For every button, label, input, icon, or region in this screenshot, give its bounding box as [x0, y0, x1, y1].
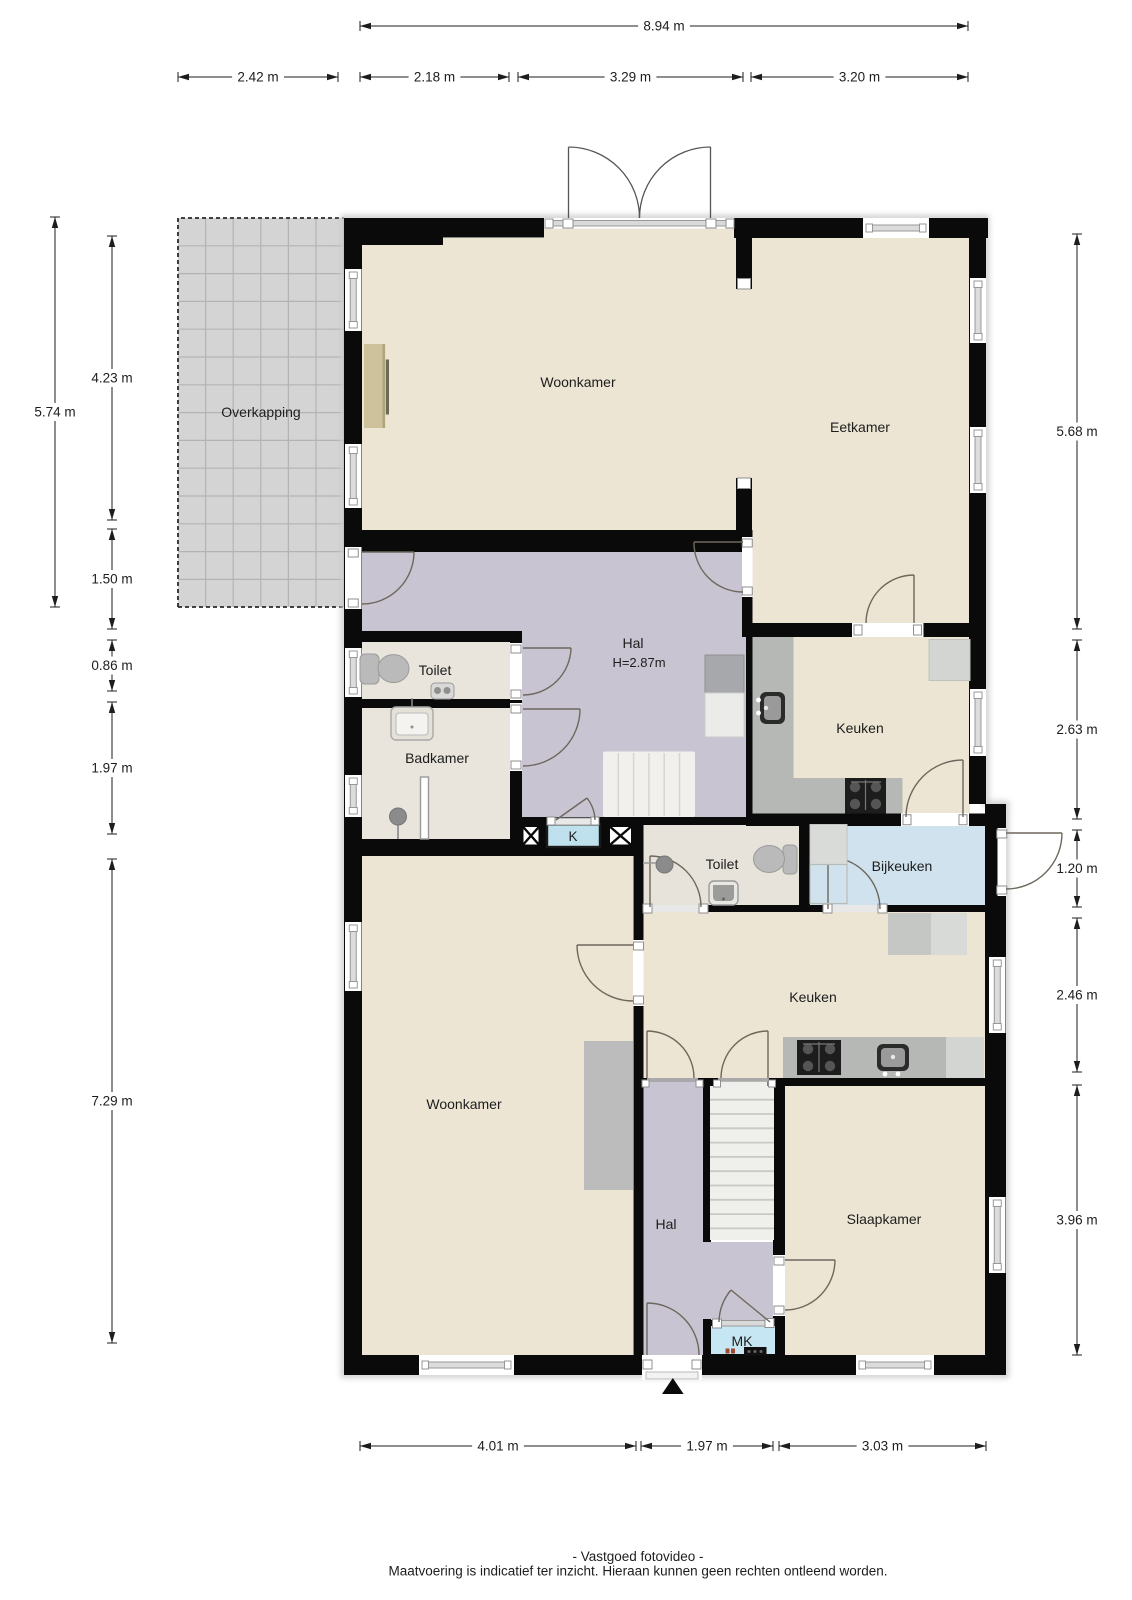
svg-text:Eetkamer: Eetkamer — [830, 419, 890, 435]
svg-text:Toilet: Toilet — [706, 856, 739, 872]
svg-text:Overkapping: Overkapping — [221, 404, 300, 420]
svg-text:Badkamer: Badkamer — [405, 750, 469, 766]
svg-text:4.01 m: 4.01 m — [477, 1439, 518, 1454]
svg-text:Woonkamer: Woonkamer — [540, 374, 616, 390]
svg-text:Hal: Hal — [655, 1216, 676, 1232]
svg-text:4.23 m: 4.23 m — [91, 371, 132, 386]
svg-text:1.97 m: 1.97 m — [91, 761, 132, 776]
svg-text:7.29 m: 7.29 m — [91, 1094, 132, 1109]
svg-text:3.29 m: 3.29 m — [610, 70, 651, 85]
svg-text:2.42 m: 2.42 m — [237, 70, 278, 85]
svg-text:Maatvoering is indicatief ter: Maatvoering is indicatief ter inzicht. H… — [388, 1564, 887, 1579]
svg-text:5.68 m: 5.68 m — [1056, 424, 1097, 439]
svg-text:- Vastgoed fotovideo -: - Vastgoed fotovideo - — [572, 1549, 703, 1564]
svg-text:5.74 m: 5.74 m — [34, 405, 75, 420]
svg-text:MK: MK — [732, 1333, 754, 1349]
svg-text:0.86 m: 0.86 m — [91, 658, 132, 673]
svg-text:3.96 m: 3.96 m — [1056, 1213, 1097, 1228]
svg-text:K: K — [568, 829, 577, 844]
svg-text:1.20 m: 1.20 m — [1056, 861, 1097, 876]
svg-text:3.03 m: 3.03 m — [862, 1439, 903, 1454]
svg-text:Toilet: Toilet — [419, 662, 452, 678]
svg-text:Hal: Hal — [622, 635, 643, 651]
svg-text:Slaapkamer: Slaapkamer — [847, 1211, 922, 1227]
svg-text:2.46 m: 2.46 m — [1056, 988, 1097, 1003]
svg-text:2.63 m: 2.63 m — [1056, 722, 1097, 737]
svg-text:3.20 m: 3.20 m — [839, 70, 880, 85]
svg-text:Keuken: Keuken — [836, 720, 883, 736]
svg-text:1.50 m: 1.50 m — [91, 572, 132, 587]
svg-text:1.97 m: 1.97 m — [686, 1439, 727, 1454]
svg-text:Keuken: Keuken — [789, 989, 836, 1005]
svg-text:8.94 m: 8.94 m — [643, 19, 684, 34]
svg-text:H=2.87m: H=2.87m — [612, 655, 665, 670]
svg-text:Woonkamer: Woonkamer — [426, 1096, 502, 1112]
svg-text:2.18 m: 2.18 m — [414, 70, 455, 85]
svg-text:Bijkeuken: Bijkeuken — [872, 858, 933, 874]
